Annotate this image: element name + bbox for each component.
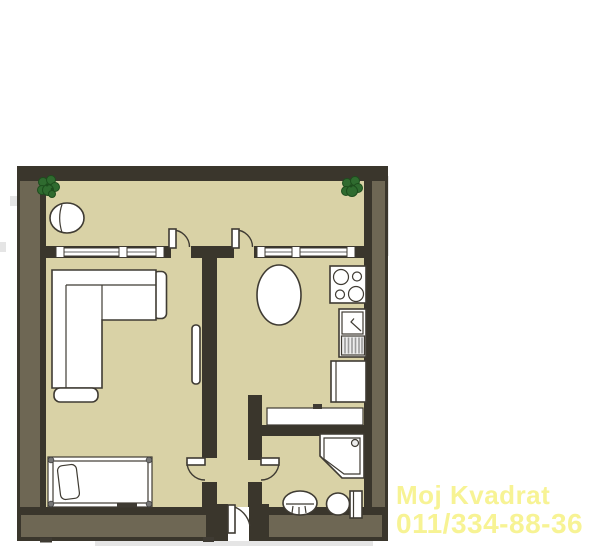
toilet-bowl bbox=[327, 493, 350, 515]
balcony-window-left bbox=[56, 247, 164, 258]
toilet bbox=[327, 491, 363, 518]
entrance-opening bbox=[206, 504, 269, 541]
kitchen-sink-with-drainer bbox=[339, 309, 366, 357]
watermark-phone: 011/334-88-36 bbox=[396, 509, 583, 538]
floor-plan-image: Moj Kvadrat 011/334-88-36 bbox=[0, 0, 600, 560]
hall-bath-wall-upper bbox=[248, 395, 262, 460]
shower-drain bbox=[352, 440, 359, 447]
pillow bbox=[57, 464, 80, 500]
floor-plan-drawing bbox=[0, 0, 600, 560]
stove-4-burners bbox=[330, 266, 366, 303]
radiator bbox=[192, 325, 200, 384]
balcony-window-right bbox=[257, 247, 355, 258]
single-bed bbox=[48, 457, 152, 508]
watermark: Moj Kvadrat 011/334-88-36 bbox=[396, 482, 583, 538]
top-exterior-wall bbox=[17, 166, 388, 181]
wash-basin bbox=[283, 491, 317, 515]
watermark-company: Moj Kvadrat bbox=[396, 482, 583, 509]
oval-dining-table bbox=[257, 265, 301, 325]
ottoman bbox=[54, 388, 98, 402]
kitchen-cabinet bbox=[331, 361, 366, 402]
toilet-tank bbox=[350, 491, 362, 518]
balcony-chair bbox=[50, 203, 84, 233]
living-hall-wall-upper bbox=[202, 250, 217, 458]
